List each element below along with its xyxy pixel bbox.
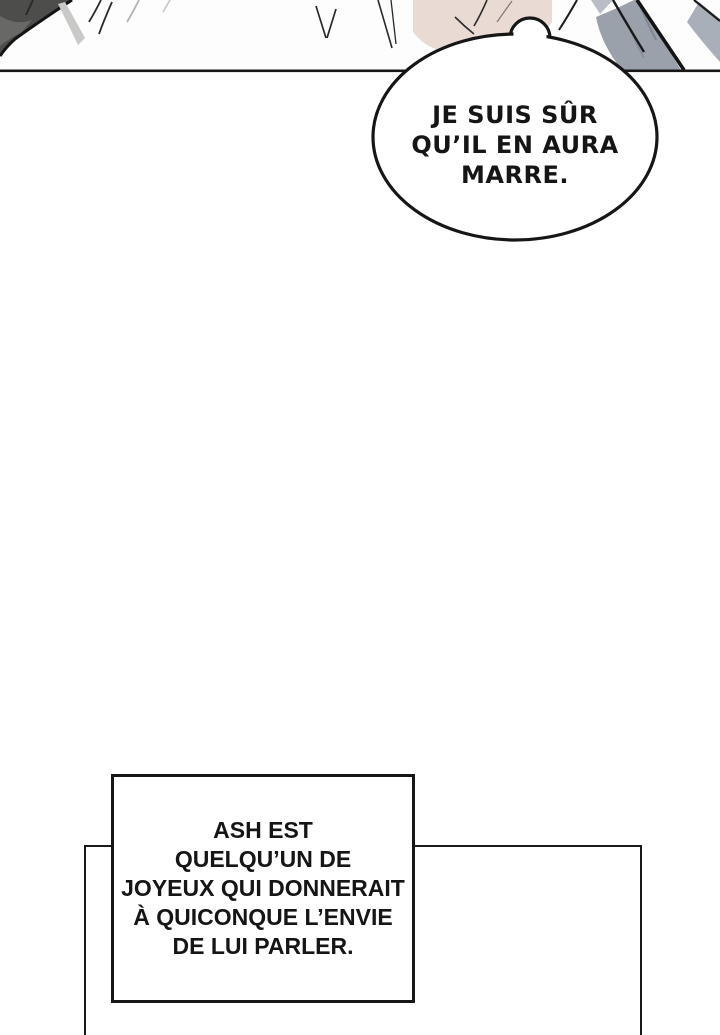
narration-box: ASH EST QUELQU’UN DE JOYEUX QUI DONNERAI…: [111, 774, 415, 1003]
narration-line: DE LUI PARLER.: [121, 932, 405, 961]
narration-line: JOYEUX QUI DONNERAIT: [121, 874, 405, 903]
narration-line: À QUICONQUE L’ENVIE: [121, 903, 405, 932]
speech-line: QU’IL EN AURA: [375, 130, 655, 160]
speech-line: MARRE.: [375, 160, 655, 190]
narration-line: QUELQU’UN DE: [121, 845, 405, 874]
narration-line: ASH EST: [121, 816, 405, 845]
speech-bubble-text: JE SUIS SÛR QU’IL EN AURA MARRE.: [375, 100, 655, 190]
speech-line: JE SUIS SÛR: [375, 100, 655, 130]
speech-bubble-bump-join: [514, 30, 547, 43]
narration-text: ASH EST QUELQU’UN DE JOYEUX QUI DONNERAI…: [121, 816, 405, 961]
comic-page: { "comic": { "speech_bubble": { "lines":…: [0, 0, 720, 1024]
